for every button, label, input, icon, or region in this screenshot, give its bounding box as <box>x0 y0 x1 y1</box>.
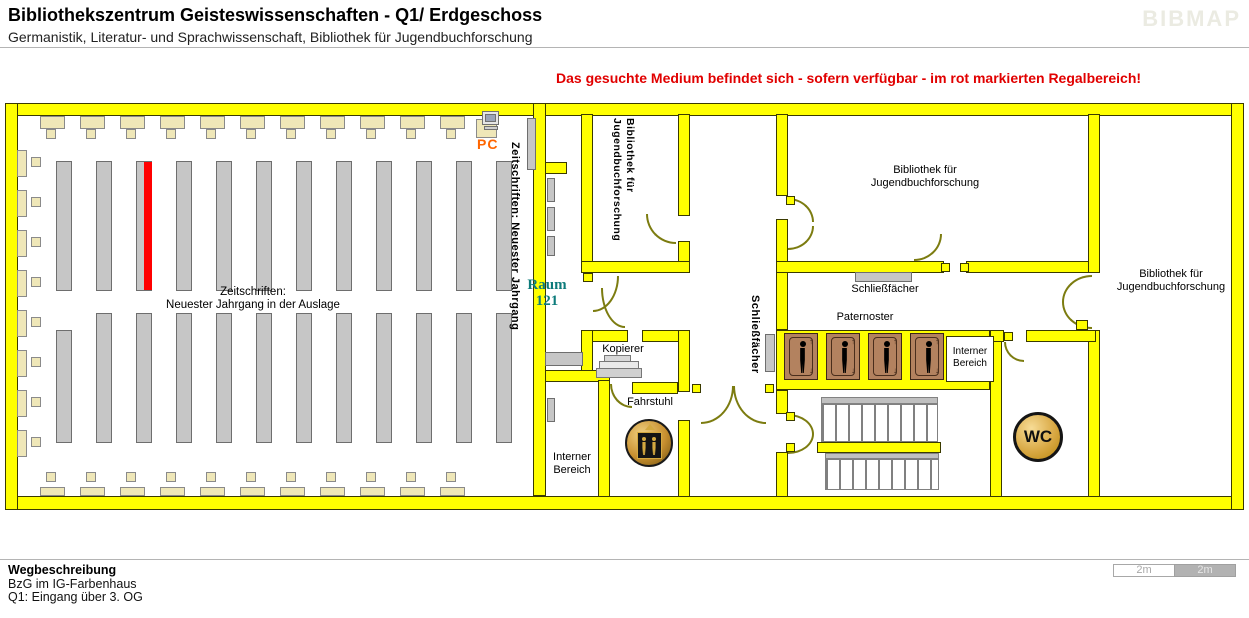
wall <box>598 380 610 497</box>
door-post <box>765 384 774 393</box>
label-line: 121 <box>525 293 569 309</box>
wall-shelf <box>527 118 536 170</box>
wall <box>1088 330 1100 497</box>
label-line: Bibliothek für <box>623 118 636 268</box>
display-shelf <box>40 116 65 129</box>
paternoster-cabin <box>910 333 944 380</box>
bookshelf <box>56 161 72 291</box>
person-icon <box>838 341 851 373</box>
shelf-row <box>56 161 512 291</box>
wall-shelf <box>545 352 583 366</box>
bookshelf <box>176 161 192 291</box>
label-line: Bibliothek für <box>835 164 1015 177</box>
label-line: Jugendbuchforschung <box>1106 281 1236 294</box>
shelf-row <box>56 313 512 443</box>
reading-desk <box>406 129 416 139</box>
reading-desk <box>166 129 176 139</box>
staff-area-label: Bereich <box>947 358 993 370</box>
wall <box>1088 114 1100 273</box>
door-post <box>692 384 701 393</box>
up-arrow-icon <box>809 338 813 346</box>
display-shelf <box>17 270 27 297</box>
staff-area-right-room: Interner Bereich <box>946 336 994 382</box>
paternoster-cabin <box>784 333 818 380</box>
lockers-top-label: Schließfächer <box>840 283 930 296</box>
reading-desk <box>31 317 41 327</box>
display-shelf <box>17 430 27 457</box>
reading-desk <box>126 129 136 139</box>
display-shelf <box>17 150 27 177</box>
display-shelf <box>240 116 265 129</box>
display-shelf-column-left <box>17 150 27 457</box>
reading-desk <box>31 157 41 167</box>
person-icon <box>796 341 809 373</box>
label-line: Jugendbuchforschung <box>610 118 623 268</box>
display-shelf <box>400 116 425 129</box>
bookshelf <box>416 313 432 443</box>
wall <box>5 103 1244 116</box>
person-icon <box>922 341 935 373</box>
up-arrow-icon <box>645 424 655 430</box>
paternoster-label: Paternoster <box>820 311 910 324</box>
display-shelf <box>17 230 27 257</box>
page-subtitle: Germanistik, Literatur- und Sprachwissen… <box>8 29 533 45</box>
reading-desk <box>31 437 41 447</box>
up-arrow-icon <box>935 338 939 346</box>
directions-heading: Wegbeschreibung <box>8 563 116 577</box>
door-post <box>583 273 593 282</box>
highlighted-shelf <box>144 162 152 290</box>
display-shelf <box>120 487 145 496</box>
reading-desk <box>286 129 296 139</box>
reading-desk <box>166 472 176 482</box>
bookshelf <box>336 161 352 291</box>
wall-shelf <box>547 207 555 231</box>
wc-icon: WC <box>1013 412 1063 462</box>
bookshelf <box>256 161 272 291</box>
reading-desk <box>206 129 216 139</box>
stair-rail <box>821 397 938 404</box>
door-arc <box>1004 342 1024 362</box>
header-divider <box>0 47 1249 48</box>
bibmap-page: Bibliothekszentrum Geisteswissenschaften… <box>0 0 1249 618</box>
wall <box>545 162 567 174</box>
reading-desk <box>31 397 41 407</box>
display-shelf <box>240 487 265 496</box>
wall <box>776 390 788 414</box>
pc-keyboard-icon <box>484 126 498 130</box>
paternoster-cabin <box>826 333 860 380</box>
label-line: Bibliothek für <box>1106 268 1236 281</box>
pc-label: PC <box>477 136 498 152</box>
label-line: Interner <box>544 451 600 464</box>
door-post <box>941 263 950 272</box>
wall <box>966 261 1096 273</box>
down-arrow-icon <box>851 367 855 375</box>
periodicals-vertical-label: Zeitschriften: Neuester Jahrgang <box>508 142 522 342</box>
label-line: Zeitschriften: <box>158 286 348 299</box>
copier-icon <box>596 368 642 378</box>
display-shelf <box>360 487 385 496</box>
display-shelf-row-top <box>40 116 465 129</box>
person-icon <box>880 341 893 373</box>
lockers <box>855 272 912 282</box>
reading-desk <box>366 472 376 482</box>
reading-desk <box>31 277 41 287</box>
highlight-notice: Das gesuchte Medium befindet sich - sofe… <box>556 70 1141 86</box>
wall-shelf <box>547 236 555 256</box>
reading-desk <box>86 129 96 139</box>
reading-desk <box>246 472 256 482</box>
reading-desk <box>31 237 41 247</box>
bookshelf <box>176 313 192 443</box>
display-shelf <box>80 487 105 496</box>
stairs <box>825 459 939 490</box>
person-icon <box>640 437 648 455</box>
staff-area-left-label: Interner Bereich <box>544 451 600 477</box>
wall <box>678 420 690 497</box>
footer-divider <box>0 559 1249 560</box>
door-arc <box>788 226 814 250</box>
bookshelf <box>376 161 392 291</box>
wall <box>1231 103 1244 510</box>
scale-bar: 2m 2m <box>1113 564 1236 577</box>
reading-desk <box>86 472 96 482</box>
label-line: Bereich <box>544 464 600 477</box>
door-post <box>1004 332 1013 341</box>
door-arc <box>733 386 766 424</box>
bookshelf <box>456 161 472 291</box>
page-title: Bibliothekszentrum Geisteswissenschaften… <box>8 5 542 26</box>
reading-desk <box>206 472 216 482</box>
wall-shelf <box>547 178 555 202</box>
display-shelf <box>360 116 385 129</box>
reading-desk <box>326 472 336 482</box>
up-arrow-icon <box>893 338 897 346</box>
reading-desk <box>446 472 456 482</box>
scale-segment: 2m <box>1113 564 1175 577</box>
wall <box>776 219 788 330</box>
door-post <box>960 263 969 272</box>
directions-entrance: Q1: Eingang über 3. OG <box>8 590 143 604</box>
copier-label: Kopierer <box>597 343 649 356</box>
display-shelf <box>17 310 27 337</box>
bookshelf <box>296 313 312 443</box>
display-shelf <box>160 116 185 129</box>
reading-desk-column-left <box>31 157 41 447</box>
wall <box>632 382 678 394</box>
elevator-label: Fahrstuhl <box>620 396 680 409</box>
door-post <box>786 443 795 452</box>
bookshelf <box>96 313 112 443</box>
reading-desk <box>31 357 41 367</box>
label-line: Neuester Jahrgang in der Auslage <box>158 299 348 312</box>
youth-library-right-label: Bibliothek für Jugendbuchforschung <box>1106 268 1236 294</box>
door-post <box>786 412 795 421</box>
reading-desk-row-top <box>46 129 456 139</box>
wall-shelf <box>547 398 555 422</box>
bookshelf <box>136 313 152 443</box>
display-shelf <box>400 487 425 496</box>
door-post <box>786 196 795 205</box>
display-shelf <box>200 487 225 496</box>
door-arc <box>701 386 734 424</box>
reading-desk <box>446 129 456 139</box>
wall <box>678 330 690 392</box>
display-shelf <box>440 116 465 129</box>
bookshelf <box>56 330 72 443</box>
stair-landing <box>817 442 941 453</box>
door-post <box>1076 320 1088 330</box>
bookshelf <box>216 313 232 443</box>
room-number-label: Raum 121 <box>525 277 569 309</box>
person-icon <box>650 437 658 455</box>
youth-library-top-label: Bibliothek für Jugendbuchforschung <box>835 164 1015 190</box>
display-shelf <box>280 487 305 496</box>
bookshelf <box>256 313 272 443</box>
display-shelf-row-bottom <box>40 487 465 496</box>
reading-desk <box>46 472 56 482</box>
display-shelf <box>320 116 345 129</box>
bookshelf <box>376 313 392 443</box>
wall <box>5 496 1244 510</box>
display-shelf <box>120 116 145 129</box>
display-shelf <box>80 116 105 129</box>
reading-desk <box>286 472 296 482</box>
scale-segment: 2m <box>1174 564 1236 577</box>
display-shelf <box>200 116 225 129</box>
reading-desk <box>406 472 416 482</box>
door-arc <box>646 214 676 244</box>
reading-desk <box>126 472 136 482</box>
periodicals-display-label: Zeitschriften: Neuester Jahrgang in der … <box>158 286 348 312</box>
display-shelf <box>440 487 465 496</box>
lockers <box>765 334 775 372</box>
label-line: Jugendbuchforschung <box>835 177 1015 190</box>
display-shelf <box>320 487 345 496</box>
door-arc <box>601 288 625 328</box>
stairs <box>821 404 938 442</box>
down-arrow-icon <box>935 367 939 375</box>
door-arc <box>914 234 942 261</box>
reading-desk <box>46 129 56 139</box>
directions-building: BzG im IG-Farbenhaus <box>8 577 137 591</box>
display-shelf <box>40 487 65 496</box>
display-shelf <box>160 487 185 496</box>
down-arrow-icon <box>893 367 897 375</box>
display-shelf <box>280 116 305 129</box>
reading-desk <box>326 129 336 139</box>
label-line: Raum <box>525 277 569 293</box>
bibmap-logo: BIBMAP <box>1142 6 1241 32</box>
down-arrow-icon <box>809 367 813 375</box>
pc-screen-icon <box>485 114 496 122</box>
wall <box>776 114 788 196</box>
wall <box>581 114 593 273</box>
wall <box>678 114 690 216</box>
bookshelf <box>456 313 472 443</box>
staff-area-label: Interner <box>947 346 993 358</box>
reading-desk-row-bottom <box>46 472 456 482</box>
lockers-vertical-label: Schließfächer <box>748 295 762 380</box>
display-shelf <box>17 350 27 377</box>
bookshelf <box>416 161 432 291</box>
reading-desk <box>246 129 256 139</box>
wall <box>776 452 788 497</box>
bookshelf <box>296 161 312 291</box>
youth-library-small-label: Bibliothek für Jugendbuchforschung <box>610 118 636 268</box>
bookshelf <box>336 313 352 443</box>
reading-desk <box>31 197 41 207</box>
paternoster-cabin <box>868 333 902 380</box>
up-arrow-icon <box>851 338 855 346</box>
bookshelf <box>216 161 232 291</box>
bookshelf <box>96 161 112 291</box>
display-shelf <box>17 390 27 417</box>
door-arc <box>1062 275 1092 302</box>
display-shelf <box>17 190 27 217</box>
wall <box>1026 330 1096 342</box>
reading-desk <box>366 129 376 139</box>
